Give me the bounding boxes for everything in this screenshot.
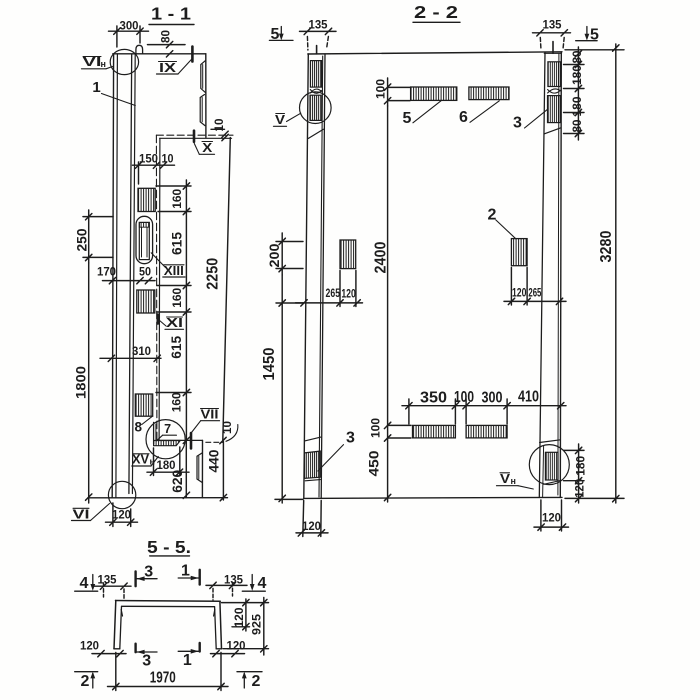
svg-text:120: 120 — [227, 639, 246, 653]
svg-text:160: 160 — [170, 188, 184, 208]
svg-text:1: 1 — [181, 563, 190, 580]
svg-text:4: 4 — [258, 575, 267, 592]
svg-text:X: X — [202, 140, 212, 155]
svg-text:200: 200 — [267, 244, 282, 268]
svg-text:1970: 1970 — [150, 670, 176, 687]
svg-text:3: 3 — [144, 564, 153, 581]
svg-text:120: 120 — [302, 519, 321, 533]
svg-text:1 - 1: 1 - 1 — [151, 4, 191, 24]
svg-text:180: 180 — [570, 96, 584, 116]
svg-text:180: 180 — [574, 455, 588, 475]
svg-text:8: 8 — [135, 420, 143, 435]
svg-text:120: 120 — [542, 510, 561, 524]
svg-text:615: 615 — [169, 335, 184, 358]
svg-text:310: 310 — [132, 344, 151, 358]
svg-text:V: V — [275, 112, 285, 127]
svg-text:IX: IX — [159, 60, 176, 75]
svg-text:1450: 1450 — [261, 347, 278, 380]
svg-text:5: 5 — [403, 110, 412, 127]
svg-text:120: 120 — [232, 607, 246, 627]
svg-text:620: 620 — [170, 470, 185, 493]
svg-text:2250: 2250 — [205, 258, 222, 290]
svg-text:1: 1 — [92, 79, 100, 96]
svg-text:160: 160 — [169, 392, 183, 412]
svg-text:3280: 3280 — [598, 230, 615, 262]
svg-text:170: 170 — [97, 264, 116, 278]
svg-text:3: 3 — [513, 114, 522, 131]
svg-text:615: 615 — [170, 232, 185, 255]
svg-text:120: 120 — [512, 285, 527, 299]
svg-text:2 - 2: 2 - 2 — [414, 2, 458, 22]
svg-text:80: 80 — [570, 119, 584, 132]
svg-text:180: 180 — [157, 458, 176, 472]
svg-text:1800: 1800 — [74, 366, 89, 399]
svg-text:925: 925 — [250, 614, 264, 635]
svg-text:3: 3 — [142, 653, 151, 670]
svg-text:410: 410 — [518, 389, 539, 406]
svg-text:135: 135 — [543, 17, 562, 31]
svg-text:180: 180 — [570, 65, 584, 85]
svg-text:150: 150 — [139, 152, 158, 166]
svg-text:6: 6 — [459, 109, 468, 126]
svg-text:250: 250 — [75, 229, 90, 252]
svg-text:120: 120 — [80, 639, 99, 653]
svg-text:н: н — [511, 476, 516, 486]
svg-text:5 - 5.: 5 - 5. — [147, 537, 191, 557]
svg-text:V: V — [500, 471, 510, 486]
svg-text:120: 120 — [341, 286, 356, 300]
svg-text:10: 10 — [220, 421, 234, 434]
svg-text:10: 10 — [162, 152, 174, 166]
svg-text:2: 2 — [488, 206, 497, 223]
svg-text:350: 350 — [420, 390, 447, 407]
svg-text:4: 4 — [80, 575, 89, 592]
svg-text:440: 440 — [206, 450, 221, 473]
svg-text:80: 80 — [159, 30, 173, 43]
svg-text:450: 450 — [367, 451, 382, 477]
svg-text:100: 100 — [369, 418, 383, 438]
svg-text:160: 160 — [170, 287, 184, 307]
svg-text:135: 135 — [309, 18, 328, 32]
svg-text:1: 1 — [183, 652, 192, 669]
svg-text:300: 300 — [482, 390, 503, 407]
svg-text:80: 80 — [570, 50, 584, 63]
svg-text:3: 3 — [346, 429, 355, 446]
svg-text:135: 135 — [98, 573, 117, 587]
svg-text:300: 300 — [120, 18, 139, 32]
svg-text:7: 7 — [164, 422, 171, 436]
svg-text:265: 265 — [326, 286, 341, 300]
svg-text:2: 2 — [252, 673, 261, 690]
svg-text:2: 2 — [81, 673, 90, 690]
svg-text:50: 50 — [139, 265, 151, 279]
svg-text:н: н — [101, 59, 106, 69]
